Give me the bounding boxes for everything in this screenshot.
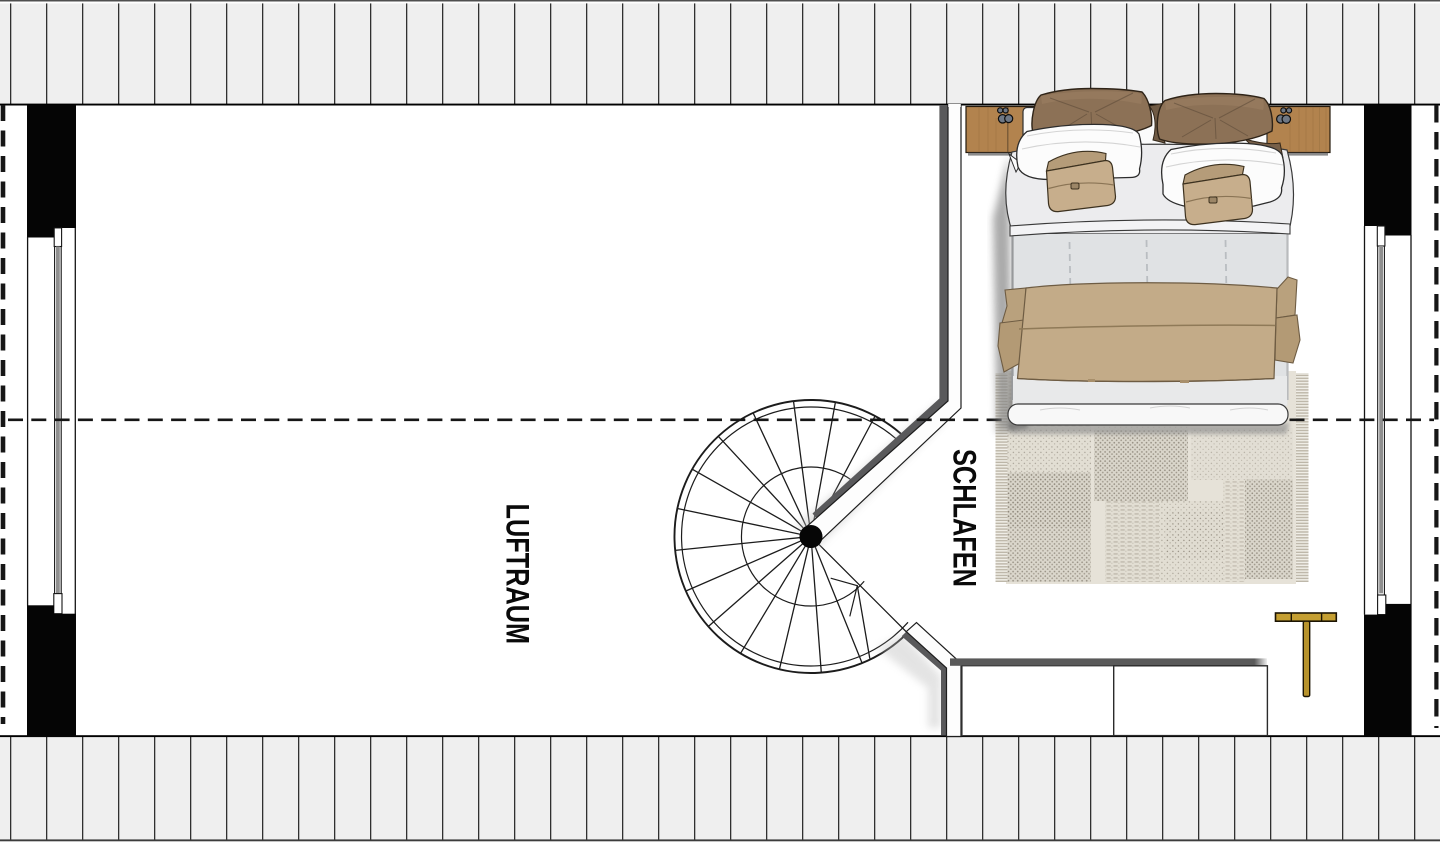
svg-text:LUFTRAUM: LUFTRAUM [500,504,536,645]
svg-text:SCHLAFEN: SCHLAFEN [946,449,982,587]
